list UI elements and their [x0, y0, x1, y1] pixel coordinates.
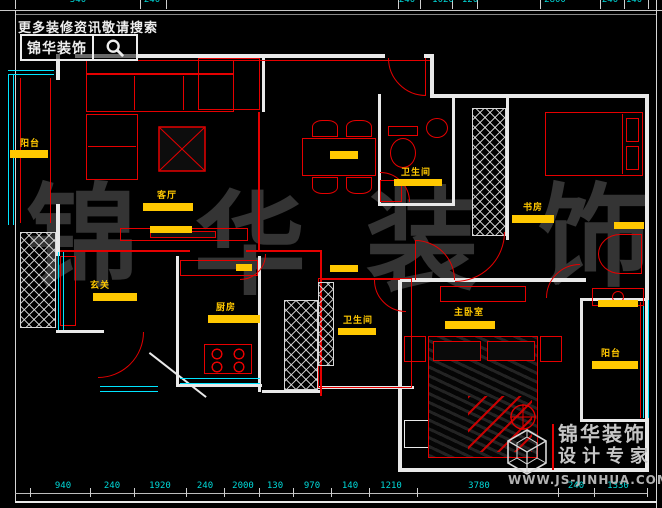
toilet — [390, 138, 416, 168]
pillow — [626, 146, 639, 170]
pillow — [433, 341, 481, 361]
room-label-study: 书房 — [523, 204, 543, 213]
dim-top: 540 — [70, 0, 86, 5]
dim-tick — [624, 0, 625, 9]
dimension-highlight-bar — [330, 151, 358, 159]
dimension-highlight-bar — [512, 215, 554, 223]
dim-tick — [594, 488, 595, 497]
dim-tick — [600, 0, 601, 9]
dimension-highlight-bar — [208, 315, 260, 323]
door-arc — [98, 332, 144, 378]
floorplan-canvas: 540 240 240 1020 120 2800 240 140 940 24… — [0, 0, 662, 508]
brand-name: 锦华装饰 — [22, 38, 92, 58]
study-bed-line — [622, 114, 623, 174]
dim-top: 120 — [462, 0, 478, 5]
frame-line — [15, 501, 657, 503]
room-label-living: 客厅 — [157, 192, 177, 201]
dim-tick — [134, 488, 135, 497]
dimension-highlight-bar — [93, 293, 137, 301]
dim-tick — [540, 0, 541, 9]
dimension-highlight-bar — [338, 328, 376, 335]
dim-tick — [331, 488, 332, 497]
sofa-divider — [183, 76, 184, 110]
dim-tick — [30, 488, 31, 497]
dimension-highlight-bar — [236, 264, 252, 271]
dim-bottom: 140 — [342, 482, 358, 491]
dim-top: 2800 — [544, 0, 566, 5]
room-label-entry: 玄关 — [90, 282, 110, 291]
room-label-balcony-right: 阳台 — [601, 350, 621, 359]
coffee-table — [158, 126, 206, 172]
logo-divider — [552, 424, 554, 470]
door-arc — [374, 280, 406, 312]
dining-chair — [312, 120, 338, 137]
wall-segment — [506, 98, 509, 240]
red-accent — [50, 78, 51, 223]
dimension-highlight-bar — [150, 226, 192, 233]
dim-tick — [369, 488, 370, 497]
frame-line — [15, 10, 16, 501]
window — [8, 70, 54, 75]
dim-tick — [648, 0, 649, 9]
dim-tick — [558, 488, 559, 497]
room-label-master-bedroom: 主卧室 — [454, 309, 484, 318]
pillow — [626, 118, 639, 142]
dim-bottom: 3780 — [468, 482, 490, 491]
shaft-hatch — [284, 300, 318, 390]
red-accent — [640, 302, 641, 418]
armchair — [598, 234, 642, 274]
red-wall — [258, 112, 260, 252]
search-icon — [92, 36, 136, 59]
pillow — [487, 341, 535, 361]
wall-segment — [430, 94, 648, 98]
wardrobe-hatch — [472, 108, 506, 236]
dim-top: 240 — [144, 0, 160, 5]
dim-bottom: 240 — [104, 482, 120, 491]
sofa-divider — [134, 76, 135, 110]
window — [643, 300, 649, 418]
dim-tick — [224, 488, 225, 497]
dimension-highlight-bar — [330, 265, 358, 272]
wall-segment — [452, 94, 455, 206]
footer-brand-name: 锦华装饰 — [558, 423, 646, 445]
window — [100, 386, 158, 392]
dimension-highlight-bar — [598, 300, 638, 307]
dining-chair — [312, 177, 338, 194]
dimension-highlight-bar — [394, 179, 442, 186]
dim-tick — [417, 488, 418, 497]
cube-logo-icon — [505, 428, 549, 476]
dim-bottom: 240 — [197, 482, 213, 491]
door-leaf — [415, 240, 416, 280]
red-wall — [60, 250, 190, 252]
dimension-highlight-bar — [614, 222, 644, 229]
toilet-tank — [388, 126, 418, 136]
dim-top: 1020 — [432, 0, 454, 5]
wall-segment — [580, 298, 583, 422]
room-label-kitchen: 厨房 — [216, 304, 236, 313]
dim-top: 240 — [602, 0, 618, 5]
dim-tick — [166, 0, 167, 9]
nightstand — [540, 336, 562, 362]
dim-bottom: 940 — [55, 482, 71, 491]
wall-segment — [176, 256, 179, 386]
room-label-bathroom-bottom: 卫生间 — [343, 317, 373, 326]
dim-bottom: 2000 — [232, 482, 254, 491]
dim-top: 140 — [626, 0, 642, 5]
door-arc — [546, 264, 580, 298]
dimension-highlight-bar — [10, 150, 48, 158]
wall-segment — [56, 330, 104, 333]
closet-hatch — [318, 282, 334, 366]
dining-chair — [346, 177, 372, 194]
sofa-back — [86, 60, 234, 74]
brand-search-box: 锦华装饰 — [20, 34, 138, 61]
sink — [426, 118, 448, 138]
dim-tick — [420, 0, 421, 9]
frame-line — [15, 14, 656, 15]
dining-chair — [346, 120, 372, 137]
footer-website: WWW.JS-JINHUA.COM — [508, 473, 662, 487]
dimension-highlight-bar — [445, 321, 495, 329]
dim-tick — [259, 488, 260, 497]
dimension-highlight-bar — [592, 361, 638, 369]
door-arc — [455, 232, 505, 282]
dim-tick — [15, 0, 16, 9]
dim-tick — [140, 0, 141, 9]
sofa-seat — [86, 74, 234, 112]
window — [58, 252, 64, 330]
chaise-divider — [88, 146, 136, 147]
stove — [204, 344, 252, 374]
dim-top: 240 — [399, 0, 415, 5]
window — [180, 378, 260, 384]
wall-segment — [56, 204, 60, 256]
footer-brand-subtitle: 设计专家 — [558, 446, 654, 468]
wall-segment — [430, 54, 434, 98]
dimension-highlight-bar — [143, 203, 193, 211]
frame-line — [0, 10, 662, 11]
wall-segment — [262, 54, 265, 112]
dim-bottom: 970 — [304, 482, 320, 491]
wall-segment — [378, 203, 455, 206]
wall-segment — [262, 390, 322, 393]
dim-bottom: 130 — [267, 482, 283, 491]
dim-tick — [293, 488, 294, 497]
watermark-char: 华 — [194, 190, 306, 302]
dim-bottom: 1210 — [380, 482, 402, 491]
door-arc — [388, 58, 426, 96]
nightstand — [404, 336, 426, 362]
door-leaf — [425, 58, 426, 96]
dim-tick — [186, 488, 187, 497]
dim-tick — [90, 488, 91, 497]
room-label-bathroom-top: 卫生间 — [401, 169, 431, 178]
room-label-balcony-left: 阳台 — [20, 140, 40, 149]
chaise — [86, 114, 138, 180]
closet-hatch — [20, 232, 56, 328]
dresser — [440, 286, 526, 302]
door-arc — [415, 240, 455, 280]
dim-bottom: 1920 — [149, 482, 171, 491]
frame-line — [656, 0, 657, 508]
dim-tick — [647, 488, 648, 497]
